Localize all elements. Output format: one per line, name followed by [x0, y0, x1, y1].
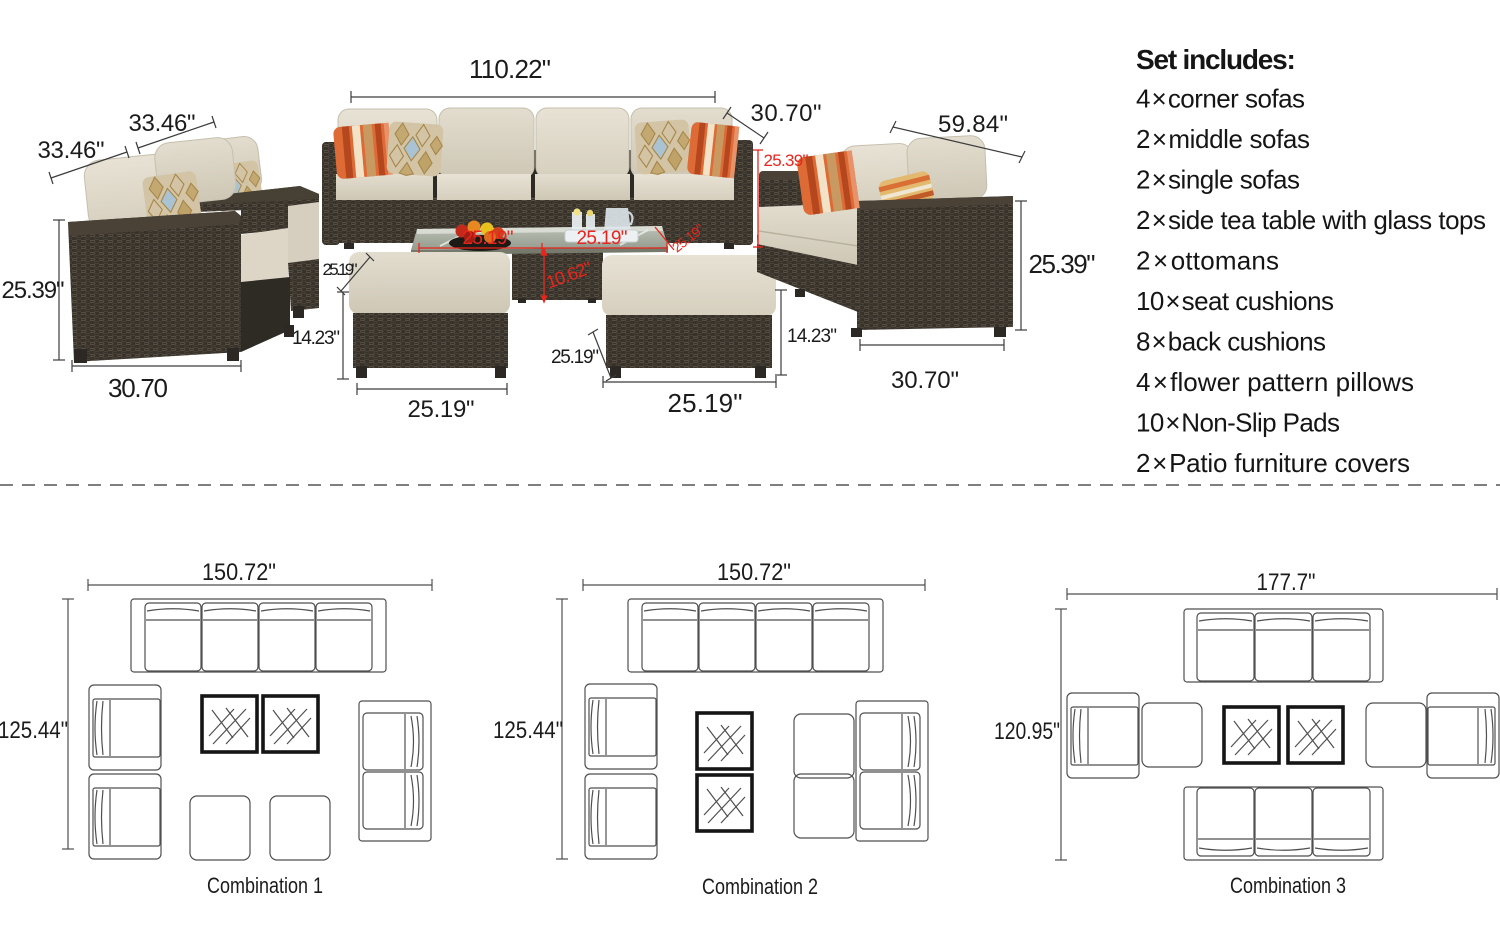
svg-text:30.70": 30.70": [891, 367, 959, 394]
svg-text:120.95": 120.95": [994, 718, 1060, 745]
svg-text:33.46": 33.46": [129, 110, 196, 137]
svg-text:10 × Non-Slip Pads: 10 × Non-Slip Pads: [1136, 408, 1340, 438]
svg-text:25.19": 25.19": [408, 396, 475, 423]
svg-text:25.19": 25.19": [577, 228, 628, 249]
svg-text:150.72": 150.72": [202, 559, 276, 586]
svg-text:14.23": 14.23": [787, 326, 837, 347]
svg-text:150.72": 150.72": [717, 559, 791, 586]
svg-text:33.46": 33.46": [38, 137, 105, 164]
svg-text:Combination 2: Combination 2: [702, 874, 818, 899]
svg-text:110.22": 110.22": [469, 54, 551, 84]
svg-text:10 × seat cushions: 10 × seat cushions: [1136, 286, 1334, 316]
svg-text:4 × corner sofas: 4 × corner sofas: [1136, 84, 1305, 114]
svg-text:2 × ottomans: 2 × ottomans: [1136, 246, 1279, 276]
svg-text:2 × side tea table with glass: 2 × side tea table with glass tops: [1136, 205, 1486, 235]
svg-text:8 × back cushions: 8 × back cushions: [1136, 327, 1326, 357]
svg-text:59.84": 59.84": [938, 111, 1008, 138]
svg-text:4 × flower pattern pillows: 4 × flower pattern pillows: [1136, 367, 1414, 397]
svg-text:25.39": 25.39": [2, 277, 65, 304]
svg-text:25.19": 25.19": [551, 347, 599, 368]
svg-text:25.19": 25.19": [463, 228, 514, 249]
svg-text:25.39": 25.39": [1029, 249, 1096, 279]
svg-text:Set includes:: Set includes:: [1136, 44, 1295, 75]
svg-text:14.23": 14.23": [292, 328, 340, 349]
svg-text:25.19": 25.19": [668, 388, 743, 418]
svg-text:30.70: 30.70: [108, 373, 168, 403]
svg-text:25.19": 25.19": [323, 260, 358, 279]
svg-text:2 × single sofas: 2 × single sofas: [1136, 165, 1300, 195]
svg-text:2 × Patio furniture covers: 2 × Patio furniture covers: [1136, 448, 1410, 478]
svg-text:125.44": 125.44": [493, 717, 563, 744]
svg-text:125.44": 125.44": [0, 717, 68, 744]
svg-text:177.7": 177.7": [1257, 569, 1316, 596]
svg-text:Combination 3: Combination 3: [1230, 873, 1346, 898]
svg-text:25.39": 25.39": [764, 151, 809, 170]
svg-text:30.70": 30.70": [751, 100, 822, 127]
svg-text:2 × middle sofas: 2 × middle sofas: [1136, 124, 1310, 154]
svg-text:Combination 1: Combination 1: [207, 873, 323, 898]
